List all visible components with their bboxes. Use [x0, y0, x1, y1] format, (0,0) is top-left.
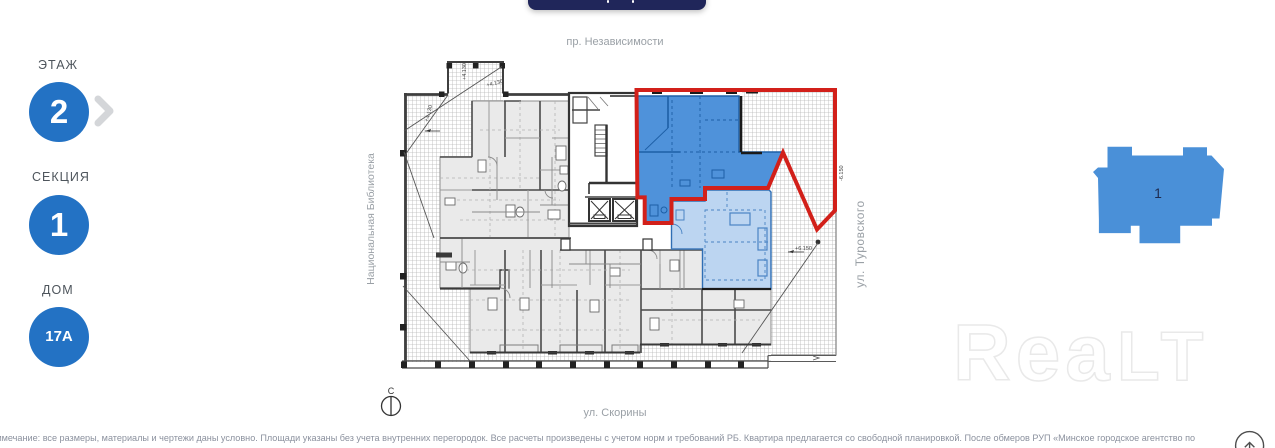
svg-text:С: С	[388, 386, 395, 396]
svg-text:1: 1	[1154, 185, 1162, 201]
svg-text:+6.150: +6.150	[795, 246, 812, 252]
svg-text:-6.150: -6.150	[839, 165, 845, 181]
svg-text:ул. Туровского: ул. Туровского	[853, 200, 867, 287]
svg-text:Rea: Rea	[953, 308, 1115, 397]
svg-text:+4.130: +4.130	[462, 63, 468, 80]
svg-text:LT: LT	[1117, 317, 1209, 395]
svg-text:ул. Скорины: ул. Скорины	[583, 407, 646, 419]
svg-text:пр. Независимости: пр. Независимости	[566, 36, 663, 48]
svg-text:Национальная Библиотека: Национальная Библиотека	[365, 153, 377, 285]
